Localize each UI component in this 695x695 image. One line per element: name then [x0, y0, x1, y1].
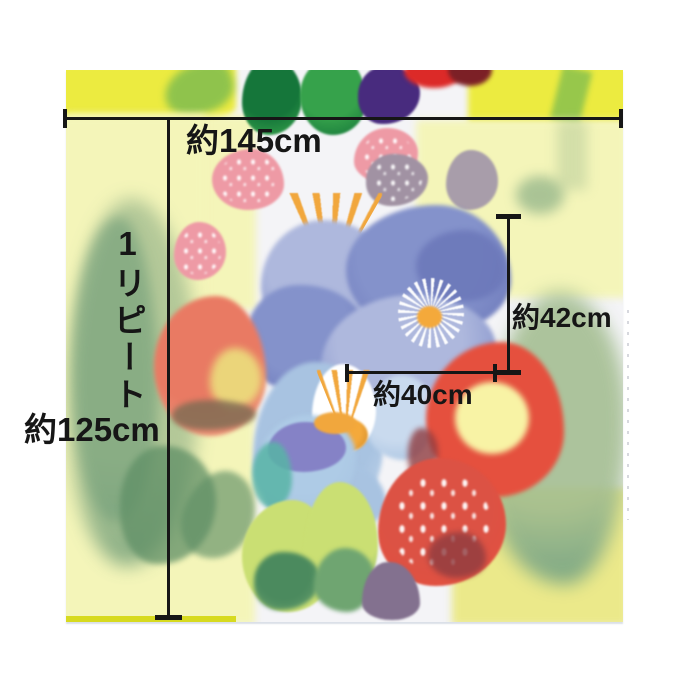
dimension-annotations: 約145cm 1リピート 約125cm 約42cm 約40cm — [0, 0, 695, 695]
width-measure-label: 約145cm — [186, 124, 322, 157]
width-measure-cap-left — [63, 109, 67, 128]
motif-height-line — [507, 216, 510, 374]
motif-width-cap-right — [493, 364, 497, 382]
repeat-measure-cap-bottom — [155, 615, 182, 620]
repeat-height-label: 約125cm — [24, 413, 160, 446]
motif-height-cap-bottom — [496, 370, 521, 375]
width-measure-line — [64, 117, 623, 120]
motif-height-cap-top — [496, 214, 521, 219]
width-measure-cap-right — [619, 109, 623, 128]
repeat-measure-line — [167, 119, 170, 619]
repeat-label: 1リピート — [111, 225, 144, 414]
motif-width-cap-left — [345, 364, 349, 382]
motif-width-label: 約40cm — [373, 381, 473, 409]
motif-height-label: 約42cm — [512, 304, 612, 332]
motif-width-line — [347, 371, 497, 374]
product-dimension-image: 約145cm 1リピート 約125cm 約42cm 約40cm — [0, 0, 695, 695]
